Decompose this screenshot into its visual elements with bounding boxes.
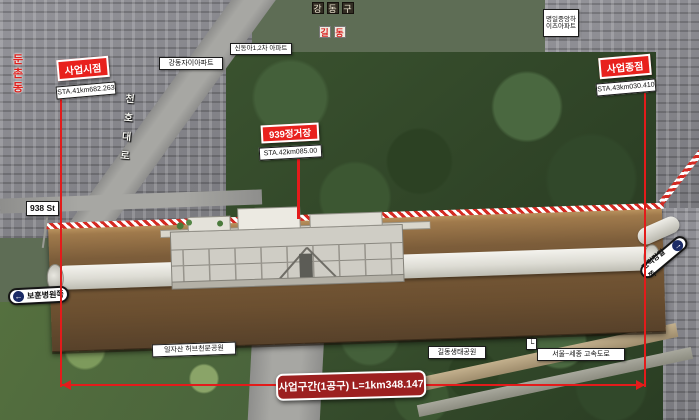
dimension-arrow-right [636,380,645,390]
label-gildong-eco-park: 길동생태공원 [428,346,486,359]
expressway-corner-icon: └ [526,338,537,350]
label-gil-dong: 길동 [317,26,347,38]
label-station-938: 938 St [26,201,59,216]
direction-bohun-label: 보훈병원쪽 [27,289,64,302]
label-seoul-sejong-expressway: 서울~세종 고속도로 [537,348,625,361]
station-939-leader-line [297,159,300,219]
project-section-banner: 사업구간(1공구) L=1km348.147 [276,370,427,401]
dimension-line-left [60,98,62,387]
label-sindonga-apartment: 신동아1,2차 아파트 [230,43,292,55]
label-myeongil-apartment: 명일중앙하이츠아파트 [543,9,579,37]
project-map: 둔촌동 천호대로 강동구 길동 강동자이아파트 신동아1,2차 아파트 명일중앙… [0,0,699,420]
dimension-line-right [644,93,646,387]
label-gangdong-gu: 강동구 [310,2,355,14]
dimension-arrow-left [62,380,71,390]
underground-cutaway-band [48,206,666,352]
left-arrow-icon: ← [13,291,25,303]
label-gangdong-xi-apartment: 강동자이아파트 [159,57,223,70]
label-dunchon-dong: 둔촌동 [13,52,23,94]
marker-station-939: 939정거장 [261,122,320,143]
